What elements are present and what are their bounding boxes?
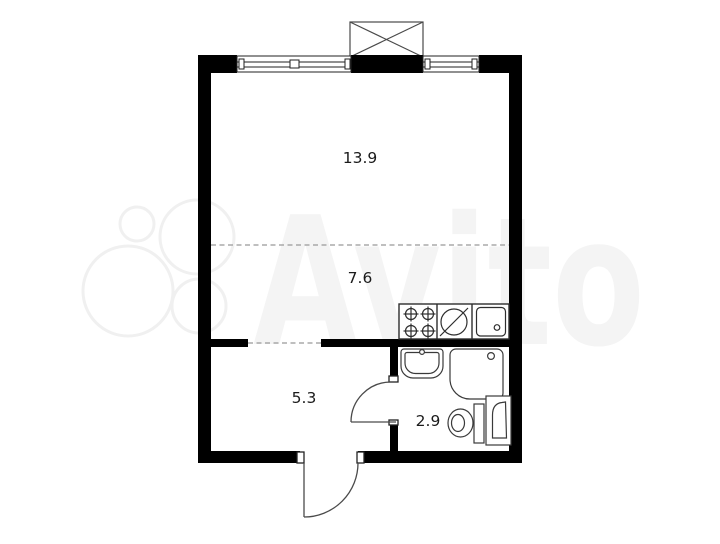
- washing-machine-icon: [486, 396, 511, 445]
- bathroom-door-swing-arc: [351, 382, 390, 422]
- entry-door: [297, 452, 364, 517]
- room-label-bathroom: 2.9: [416, 412, 441, 430]
- wall-top-middle: [351, 55, 423, 73]
- bathroom-fixtures: [401, 349, 511, 445]
- entry-door-swing-arc: [304, 463, 358, 517]
- room-label-living: 13.9: [343, 149, 378, 167]
- watermark-text: Avito: [253, 179, 645, 386]
- window-left: [237, 56, 351, 72]
- room-label-kitchen: 7.6: [348, 269, 373, 287]
- wall-left: [198, 55, 211, 463]
- wall-top-left: [198, 55, 237, 73]
- shower-icon: [450, 349, 503, 399]
- wall-top-right: [479, 55, 522, 73]
- toilet-icon: [448, 404, 484, 443]
- floorplan-svg: Avito: [0, 0, 720, 540]
- wall-bottom-left: [198, 451, 300, 463]
- wall-hallway-right: [321, 339, 509, 347]
- window-right: [423, 56, 479, 72]
- wall-hallway-left: [211, 339, 248, 347]
- bathroom-sink-icon: [401, 349, 443, 378]
- kitchen-counter: [399, 304, 509, 339]
- wall-bottom-right: [358, 451, 522, 463]
- wall-bathroom-upper: [390, 347, 398, 380]
- room-label-hallway: 5.3: [292, 389, 317, 407]
- avito-logo-icon: [83, 200, 234, 336]
- wall-bathroom-lower: [390, 424, 398, 451]
- floorplan-image: Avito: [0, 0, 720, 540]
- ventilation-shaft-icon: [350, 22, 423, 57]
